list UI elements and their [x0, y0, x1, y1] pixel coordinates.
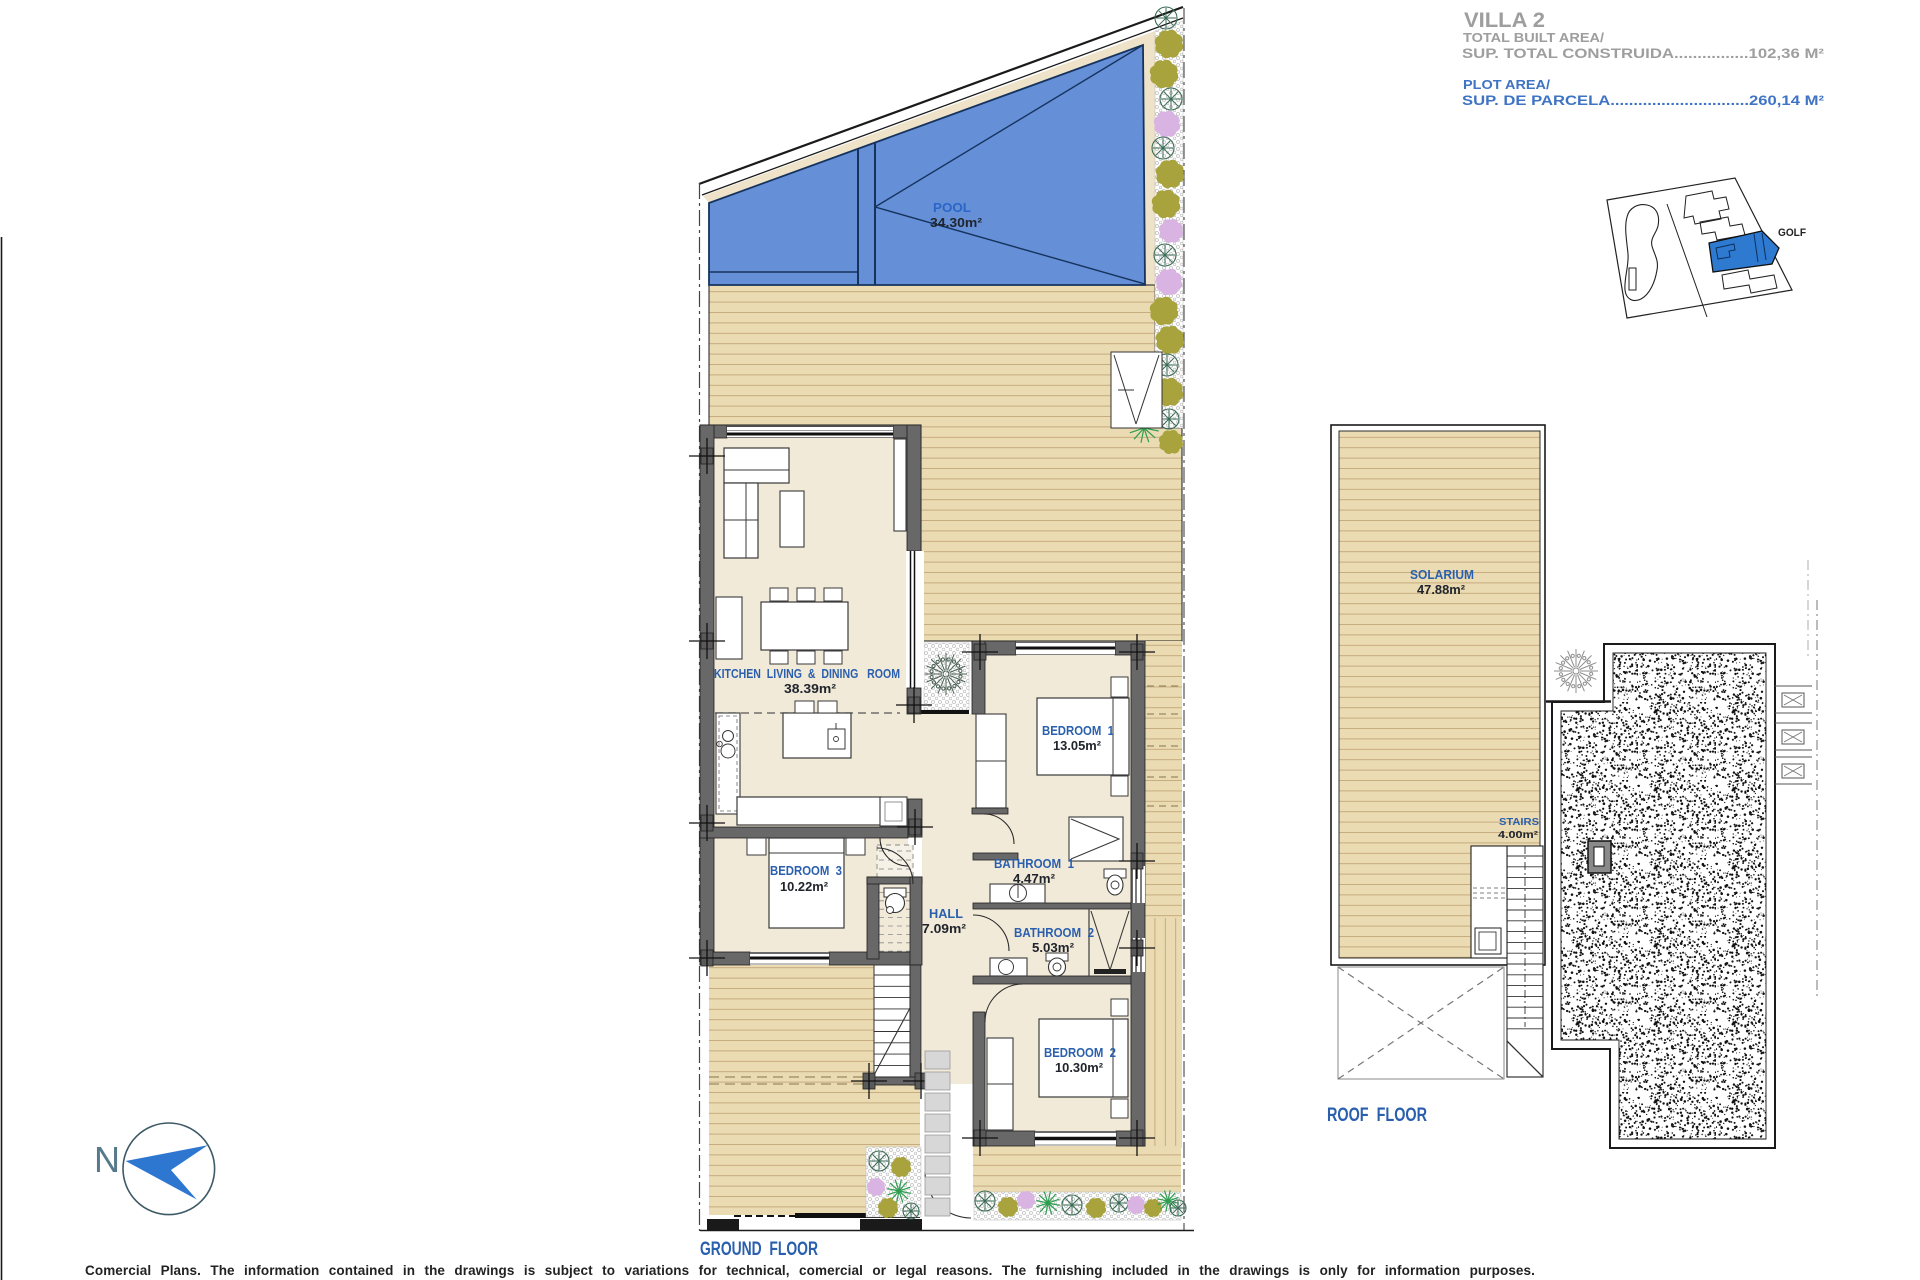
- svg-text:POOL: POOL: [933, 200, 971, 215]
- svg-text:SUP. TOTAL CONSTRUIDA.........: SUP. TOTAL CONSTRUIDA................102…: [1462, 46, 1825, 61]
- svg-text:KITCHEN LIVING & DINING R: KITCHEN LIVING & DINING ROOM: [714, 667, 900, 681]
- svg-text:7.09m²: 7.09m²: [922, 922, 966, 936]
- svg-text:BEDROOM 3: BEDROOM 3: [770, 864, 842, 878]
- svg-text:TOTAL BUILT AREA/: TOTAL BUILT AREA/: [1463, 30, 1604, 45]
- svg-text:SOLARIUM: SOLARIUM: [1410, 568, 1474, 582]
- svg-text:BEDROOM 1: BEDROOM 1: [1042, 724, 1114, 738]
- svg-text:PLOT AREA/: PLOT AREA/: [1463, 77, 1550, 92]
- svg-text:4.47m²: 4.47m²: [1013, 872, 1055, 886]
- svg-text:SUP. DE PARCELA...............: SUP. DE PARCELA.........................…: [1462, 93, 1825, 108]
- svg-text:5.03m²: 5.03m²: [1032, 941, 1074, 955]
- svg-text:34.30m²: 34.30m²: [930, 215, 983, 230]
- svg-text:BATHROOM 2: BATHROOM 2: [1014, 926, 1094, 940]
- svg-text:47.88m²: 47.88m²: [1417, 583, 1465, 597]
- svg-text:N: N: [94, 1139, 120, 1180]
- svg-text:ROOF FLOOR: ROOF FLOOR: [1327, 1105, 1427, 1126]
- svg-text:HALL: HALL: [929, 907, 963, 921]
- svg-text:STAIRS: STAIRS: [1499, 816, 1539, 828]
- svg-text:38.39m²: 38.39m²: [784, 682, 836, 696]
- svg-text:BEDROOM 2: BEDROOM 2: [1044, 1046, 1116, 1060]
- svg-text:13.05m²: 13.05m²: [1053, 739, 1101, 753]
- svg-text:GROUND FLOOR: GROUND FLOOR: [700, 1239, 818, 1260]
- svg-text:4.00m²: 4.00m²: [1498, 829, 1539, 841]
- svg-text:GOLF: GOLF: [1778, 227, 1806, 239]
- svg-text:10.22m²: 10.22m²: [780, 880, 828, 894]
- svg-text:10.30m²: 10.30m²: [1055, 1061, 1103, 1075]
- svg-text:BATHROOM 1: BATHROOM 1: [994, 857, 1074, 871]
- svg-text:VILLA 2: VILLA 2: [1464, 9, 1545, 32]
